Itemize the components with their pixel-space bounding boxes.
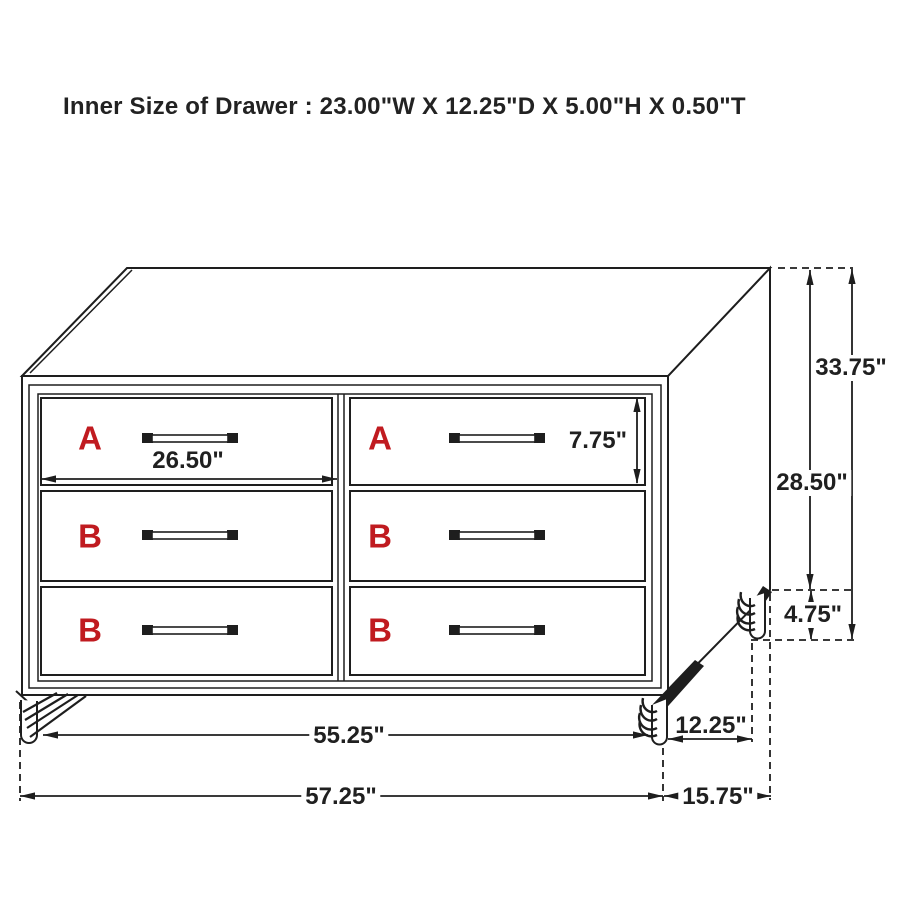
dresser-line-drawing (0, 0, 900, 900)
drawer-label: B (78, 520, 102, 553)
dim-label-front-leg-span: 55.25" (309, 723, 388, 749)
dim-label-drawer-face-height: 7.75" (565, 428, 631, 454)
drawer-handle (142, 530, 238, 540)
drawer-handle (449, 433, 545, 443)
drawer-handle (142, 625, 238, 635)
dim-line-overall-height (848, 269, 855, 639)
drawer-label: B (368, 614, 392, 647)
drawer-label: A (78, 422, 102, 455)
drawer-handle (449, 530, 545, 540)
cabinet-top-panel (22, 268, 770, 376)
dim-label-overall-width: 57.25" (301, 784, 380, 810)
drawer-label: B (78, 614, 102, 647)
dim-line-case-height (806, 270, 813, 589)
dim-label-overall-height: 33.75" (811, 355, 890, 381)
dim-label-side-leg-span: 12.25" (671, 713, 750, 739)
drawer-handle (449, 625, 545, 635)
drawer-inner-size-title: Inner Size of Drawer : 23.00"W X 12.25"D… (63, 92, 746, 122)
drawer-label: A (368, 422, 392, 455)
drawer-label: B (368, 520, 392, 553)
dim-label-leg-height: 4.75" (780, 602, 846, 628)
drawer-handle (142, 433, 238, 443)
dim-label-case-height: 28.50" (772, 470, 851, 496)
dim-label-drawer-face-width: 26.50" (148, 448, 227, 474)
dresser-dimension-diagram: Inner Size of Drawer : 23.00"W X 12.25"D… (0, 0, 900, 900)
dim-label-overall-depth: 15.75" (678, 784, 757, 810)
